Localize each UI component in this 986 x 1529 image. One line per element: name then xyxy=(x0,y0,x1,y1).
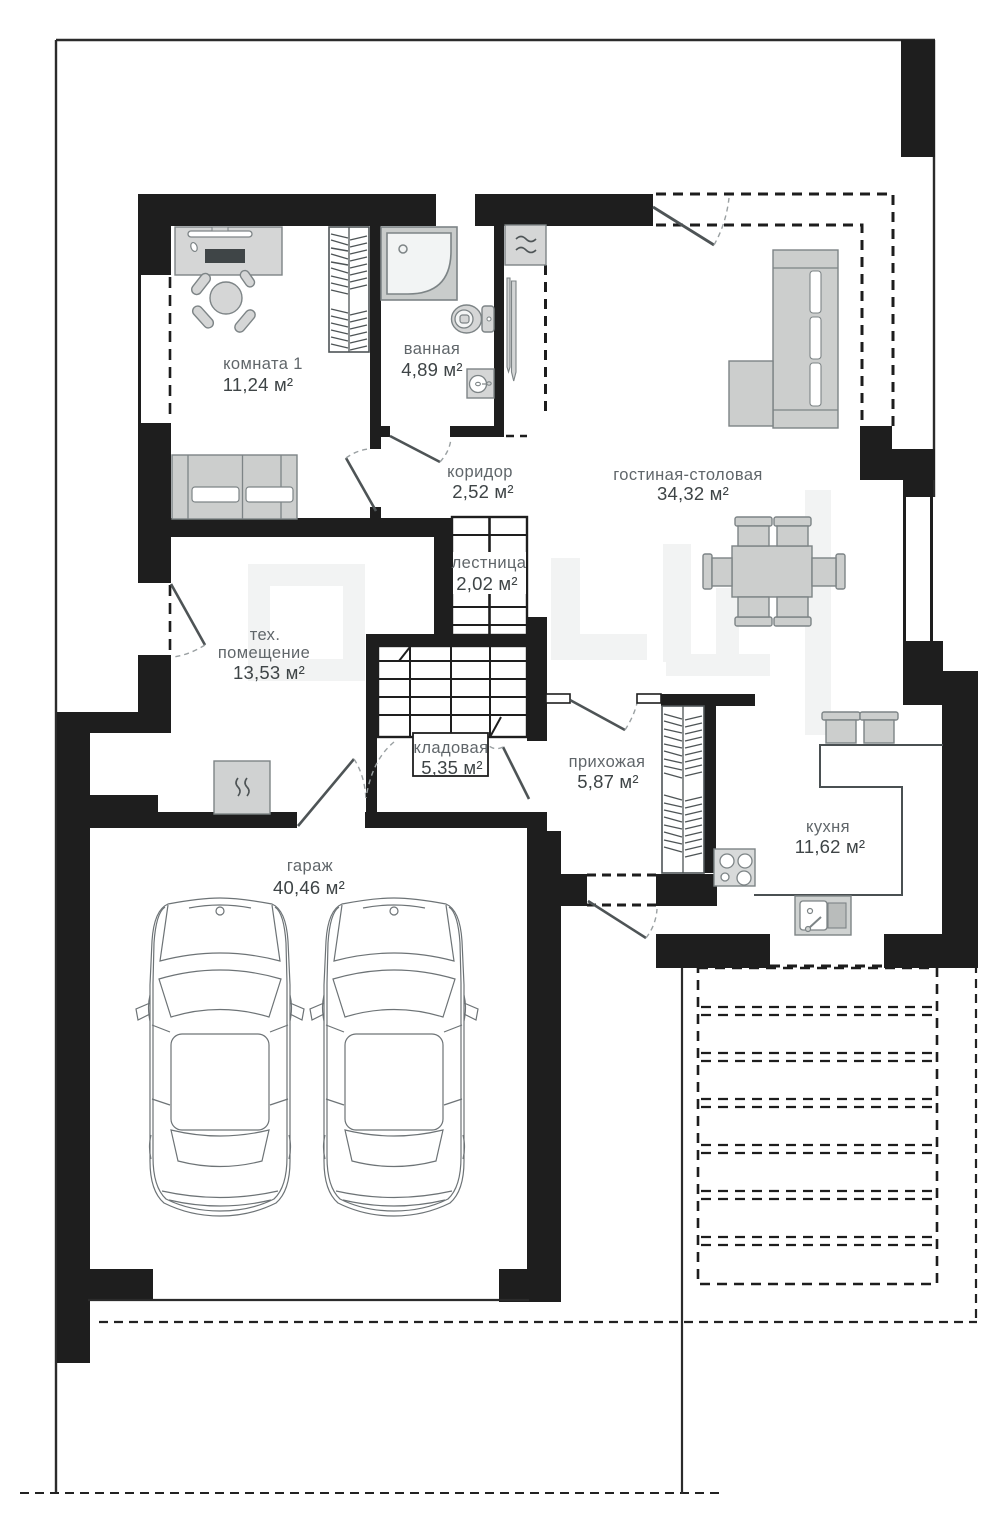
svg-text:помещение: помещение xyxy=(218,644,310,662)
svg-text:2,52 м²: 2,52 м² xyxy=(452,481,513,502)
svg-text:гостиная-столовая: гостиная-столовая xyxy=(613,466,763,484)
svg-text:40,46 м²: 40,46 м² xyxy=(273,877,345,898)
svg-text:тех.: тех. xyxy=(250,626,281,644)
svg-text:кладовая: кладовая xyxy=(414,739,489,757)
svg-text:кухня: кухня xyxy=(806,818,850,836)
svg-text:13,53 м²: 13,53 м² xyxy=(233,662,305,683)
svg-text:лестница: лестница xyxy=(452,554,527,572)
svg-text:34,32 м²: 34,32 м² xyxy=(657,483,729,504)
svg-text:11,24 м²: 11,24 м² xyxy=(223,374,294,395)
svg-text:11,62 м²: 11,62 м² xyxy=(795,836,866,857)
svg-text:прихожая: прихожая xyxy=(569,753,646,771)
svg-text:гараж: гараж xyxy=(287,857,333,875)
svg-text:5,35 м²: 5,35 м² xyxy=(421,757,482,778)
svg-text:ванная: ванная xyxy=(404,340,461,358)
svg-text:5,87 м²: 5,87 м² xyxy=(577,771,638,792)
svg-text:2,02 м²: 2,02 м² xyxy=(456,573,517,594)
svg-text:4,89 м²: 4,89 м² xyxy=(401,359,462,380)
svg-text:комната 1: комната 1 xyxy=(223,355,303,373)
svg-text:коридор: коридор xyxy=(447,463,513,481)
